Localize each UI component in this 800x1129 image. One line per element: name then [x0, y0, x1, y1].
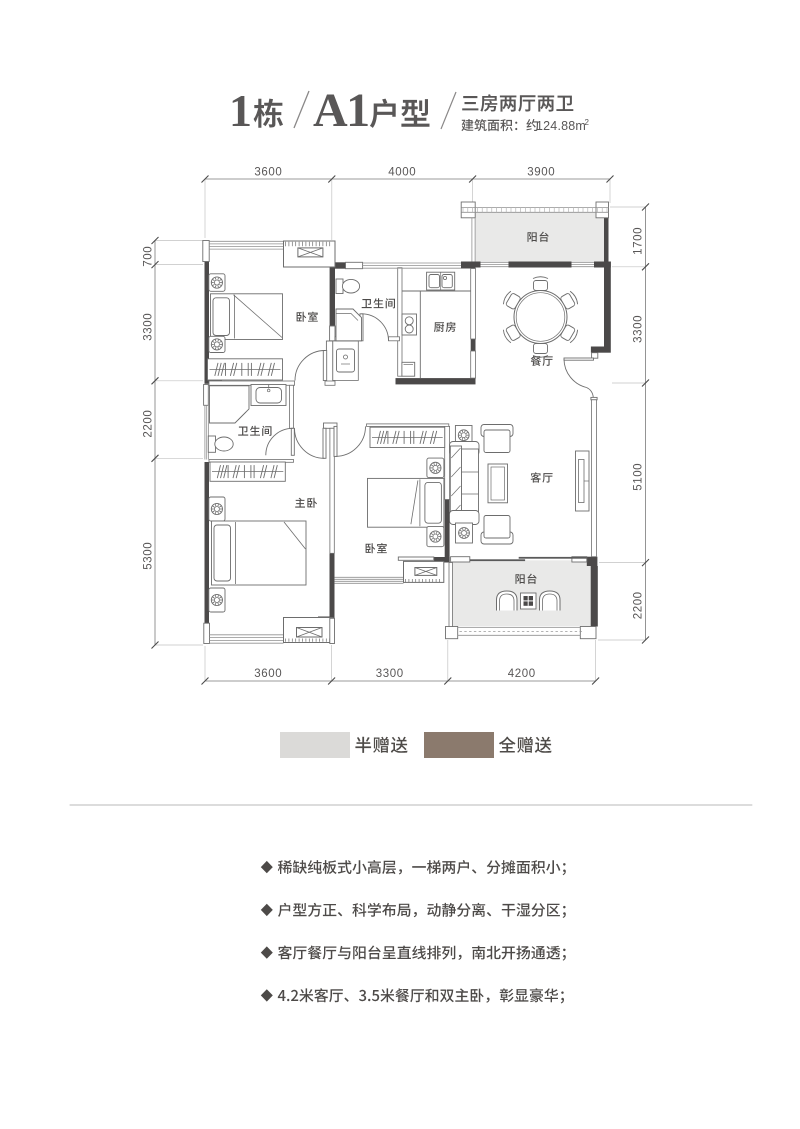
svg-text:3300: 3300 [633, 315, 645, 343]
svg-text:5100: 5100 [633, 463, 645, 491]
svg-text:2200: 2200 [633, 591, 645, 619]
svg-text:3600: 3600 [254, 167, 282, 179]
svg-text:A1: A1 [313, 84, 369, 137]
svg-text:3300: 3300 [143, 313, 155, 341]
svg-text:3300: 3300 [376, 668, 404, 680]
svg-text:4000: 4000 [388, 167, 416, 179]
svg-text:124.88m: 124.88m [536, 119, 586, 133]
svg-text:2: 2 [585, 118, 590, 127]
svg-text:2200: 2200 [143, 410, 155, 438]
svg-text:3900: 3900 [527, 167, 555, 179]
svg-text:700: 700 [143, 246, 155, 267]
svg-text:5300: 5300 [143, 542, 155, 570]
svg-text:3600: 3600 [254, 668, 282, 680]
svg-text:4200: 4200 [508, 668, 536, 680]
svg-text:1: 1 [229, 85, 252, 136]
svg-text:1700: 1700 [633, 227, 645, 255]
